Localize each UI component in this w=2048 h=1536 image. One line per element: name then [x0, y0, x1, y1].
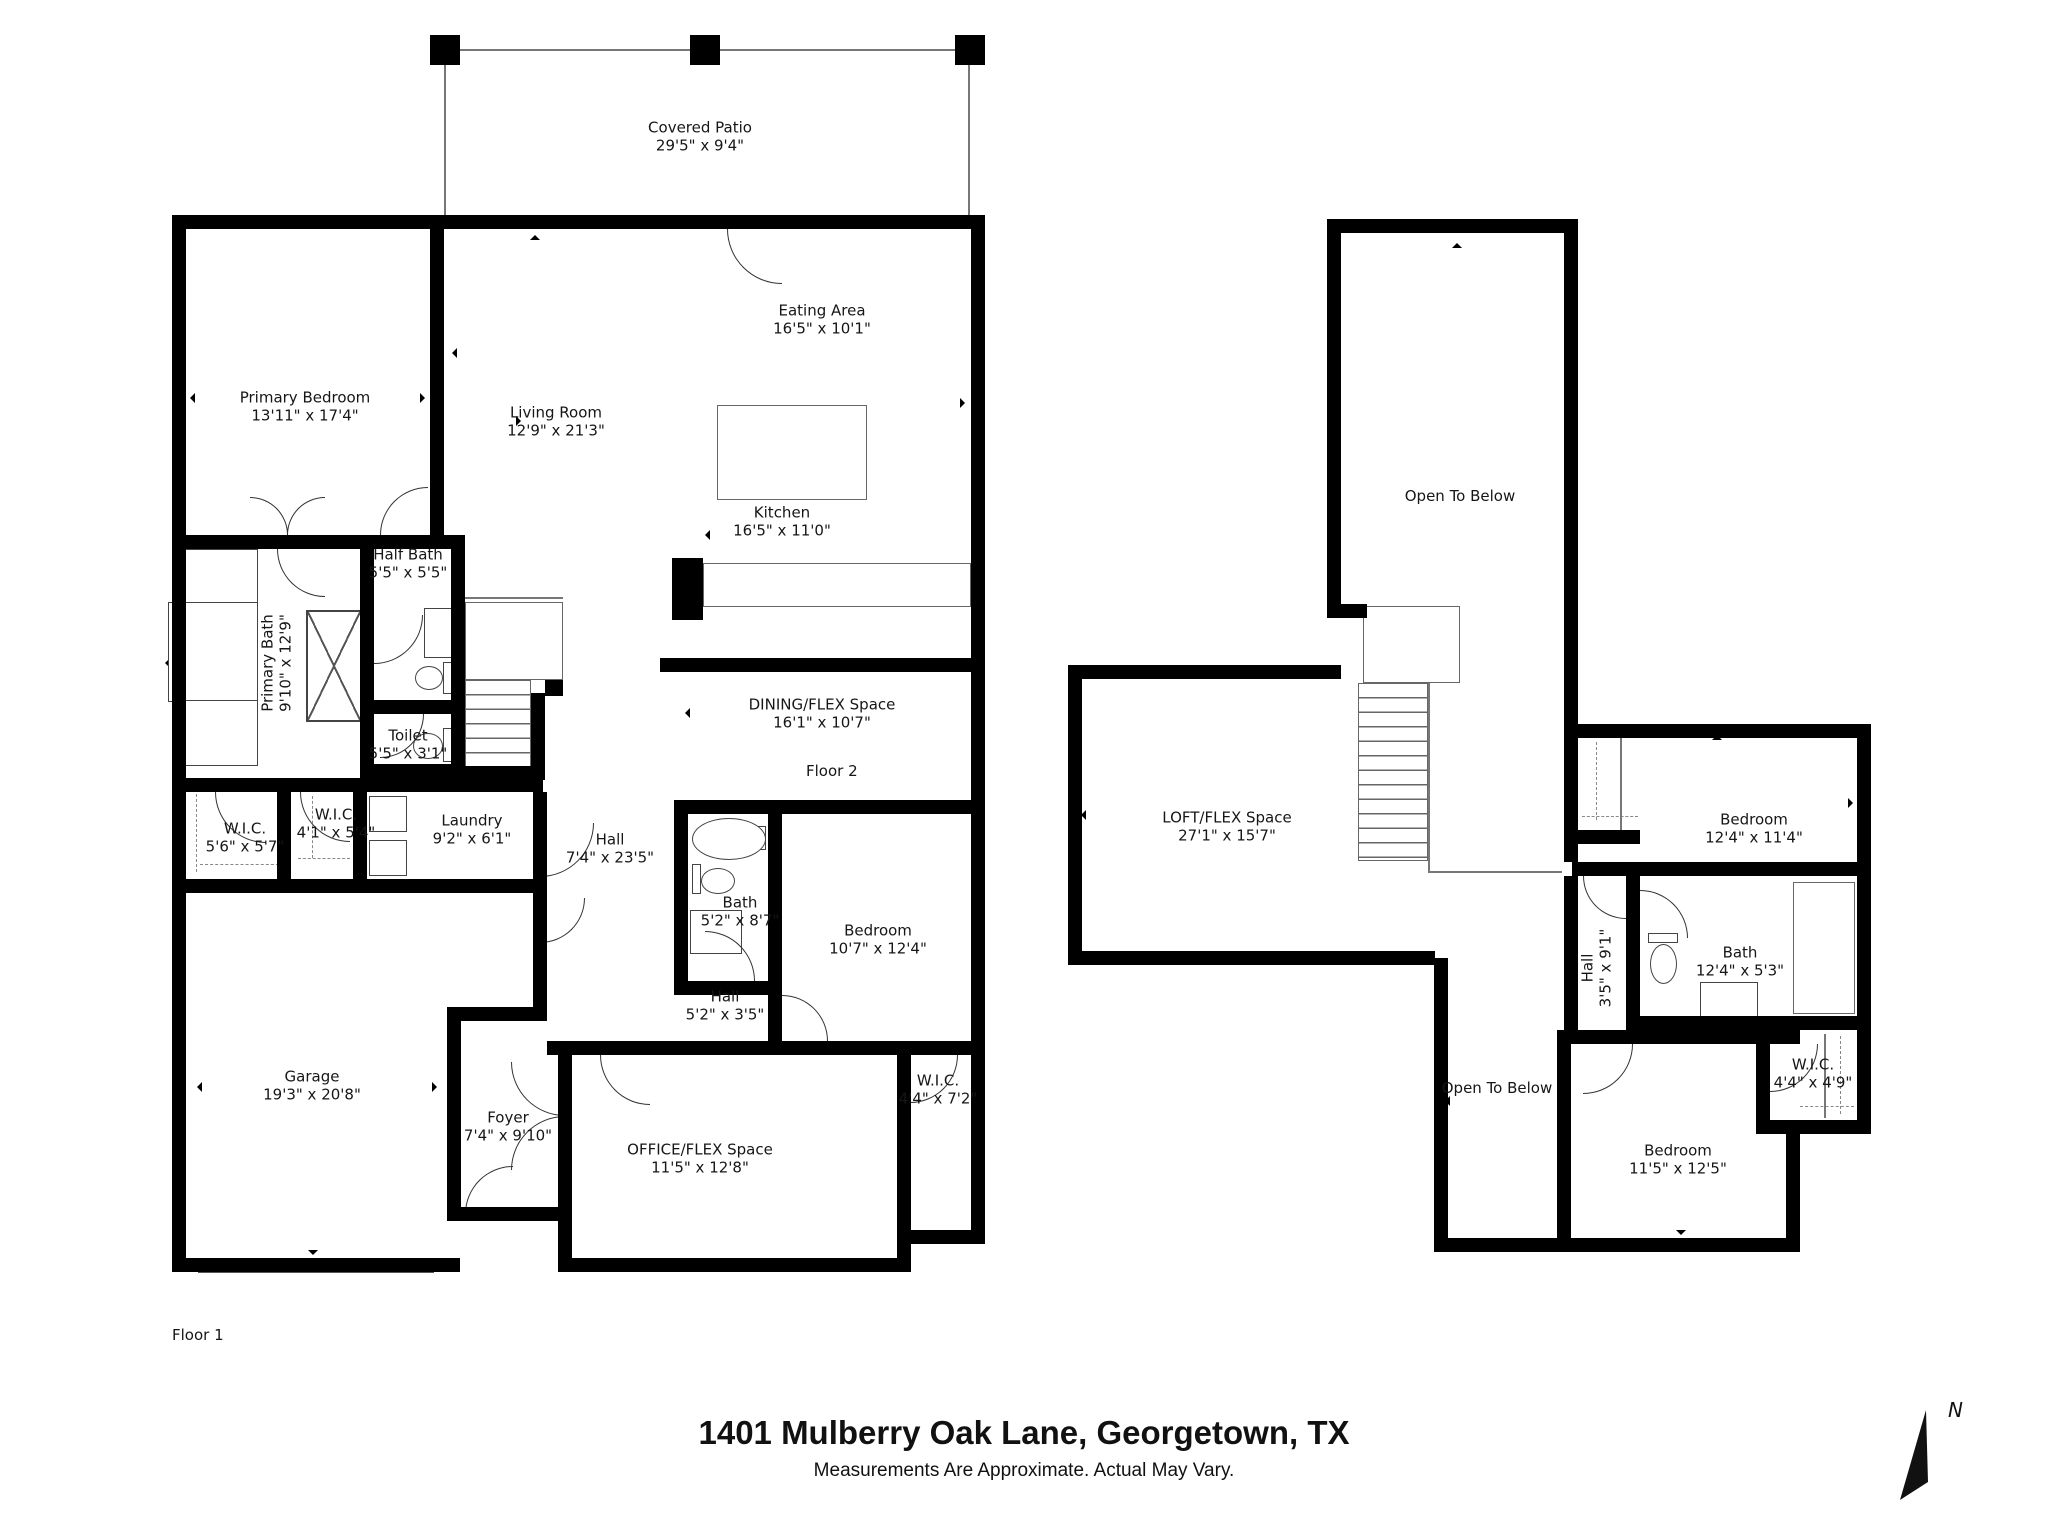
room-label-toilet: Toilet5'5" x 3'1"	[369, 727, 448, 762]
patio-edge	[444, 49, 446, 215]
wall	[172, 778, 543, 792]
closet-rod	[298, 858, 350, 861]
room-label-living-room: Living Room12'9" x 21'3"	[507, 404, 605, 439]
wall	[1578, 830, 1640, 844]
wall	[1327, 219, 1578, 233]
stairs	[465, 597, 563, 599]
room-label-open-to-below-top: Open To Below	[1405, 488, 1516, 506]
room-label-wic-f2: W.I.C.4'4" x 4'9"	[1774, 1056, 1853, 1091]
wall	[1857, 724, 1871, 1134]
door-arc	[380, 487, 428, 535]
wall	[451, 549, 465, 778]
dimension-arrow	[680, 708, 690, 718]
dimension-arrow	[700, 530, 710, 540]
wall	[558, 1258, 911, 1272]
wall	[1756, 1030, 1770, 1134]
wall	[1434, 1238, 1571, 1252]
stairs	[1363, 606, 1460, 683]
patio-post	[690, 35, 720, 65]
wall	[1572, 862, 1871, 876]
wall	[1327, 219, 1341, 618]
bathtub-icon	[692, 818, 766, 860]
closet-rod	[200, 864, 284, 867]
wall	[558, 1221, 572, 1272]
closet-rod	[1582, 816, 1638, 819]
room-label-open-to-below-bottom: Open To Below	[1442, 1080, 1553, 1098]
wall	[1564, 876, 1578, 1043]
wall	[768, 814, 782, 1055]
kitchen-counter	[703, 563, 971, 607]
wall	[674, 814, 688, 995]
north-arrow-icon	[1898, 1408, 1958, 1508]
room-label-half-bath: Half Bath5'5" x 5'5"	[369, 546, 448, 581]
railing	[1428, 683, 1430, 873]
wall	[547, 1041, 971, 1055]
door-arc	[705, 931, 755, 981]
wall	[360, 764, 465, 778]
door-arc	[287, 497, 325, 535]
wall	[674, 800, 971, 814]
page-title: 1401 Mulberry Oak Lane, Georgetown, TX	[0, 1414, 2048, 1452]
room-label-loft-flex: LOFT/FLEX Space27'1" x 15'7"	[1162, 809, 1291, 844]
railing	[1430, 871, 1562, 873]
door-arc	[277, 549, 325, 597]
door-arc	[374, 615, 423, 664]
door-arc	[250, 497, 288, 535]
wall	[172, 215, 186, 1272]
wall	[447, 1207, 572, 1221]
wall	[1564, 738, 1578, 862]
room-label-eating-area: Eating Area16'5" x 10'1"	[773, 302, 871, 337]
room-label-office-flex: OFFICE/FLEX Space11'5" x 12'8"	[627, 1141, 773, 1176]
shower-icon	[306, 610, 362, 722]
patio-edge	[968, 49, 970, 215]
wall	[1578, 724, 1871, 738]
room-label-wic-2: W.I.C.4'1" x 5'4"	[297, 806, 376, 841]
floor1-label: Floor 1	[172, 1326, 224, 1344]
wall	[447, 1007, 547, 1021]
patio-post	[955, 35, 985, 65]
door-arc	[1583, 1044, 1633, 1094]
closet-rod	[196, 794, 199, 872]
stairs	[465, 680, 531, 772]
room-label-bedroom-1-f2: Bedroom12'4" x 11'4"	[1705, 811, 1803, 846]
door-arc	[782, 995, 828, 1041]
stairs	[1358, 683, 1428, 861]
wall	[447, 1021, 461, 1221]
wall	[1564, 219, 1578, 738]
room-label-hall-2: Hall5'2" x 3'5"	[686, 988, 765, 1023]
toilet-icon	[1650, 944, 1677, 984]
wall	[430, 229, 444, 549]
room-label-dining-flex: DINING/FLEX Space16'1" x 10'7"	[749, 696, 896, 731]
bathtub-icon	[1793, 882, 1855, 1014]
dimension-arrow	[432, 1082, 442, 1092]
patio-post	[430, 35, 460, 65]
room-label-foyer: Foyer7'4" x 9'10"	[464, 1109, 552, 1144]
closet-shelf	[1620, 738, 1622, 830]
toilet-tank	[692, 864, 701, 894]
wall	[172, 215, 985, 229]
dimension-arrow	[960, 398, 970, 408]
room-label-bath-f2: Bath12'4" x 5'3"	[1696, 944, 1784, 979]
room-label-primary-bath: Primary Bath9'10" x 12'9"	[259, 614, 294, 712]
room-label-bedroom-2-f2: Bedroom11'5" x 12'5"	[1629, 1142, 1727, 1177]
dimension-arrow	[420, 393, 430, 403]
wall	[1068, 665, 1341, 679]
room-label-garage: Garage19'3" x 20'8"	[263, 1068, 361, 1103]
floor-plan-canvas: Covered Patio29'5" x 9'4" Primary Bedroo…	[0, 0, 2048, 1536]
wall	[545, 680, 563, 696]
room-label-wic-1: W.I.C.5'6" x 5'7"	[206, 820, 285, 855]
page-disclaimer: Measurements Are Approximate. Actual May…	[0, 1460, 2048, 1482]
vanity	[174, 549, 258, 603]
dimension-arrow	[447, 348, 457, 358]
stairs	[465, 602, 563, 680]
wall	[1557, 1030, 1571, 1252]
wall	[1068, 951, 1435, 965]
wall	[1640, 1016, 1871, 1030]
room-label-kitchen: Kitchen16'5" x 11'0"	[733, 504, 831, 539]
floor2-label: Floor 2	[806, 762, 858, 780]
kitchen-island	[717, 405, 867, 500]
closet-rod	[1800, 1106, 1854, 1109]
wall	[1756, 1120, 1871, 1134]
dryer-icon	[369, 840, 407, 876]
wall	[1786, 1134, 1800, 1252]
wall	[533, 792, 547, 1021]
dimension-arrow	[192, 1082, 202, 1092]
room-label-bath-1: Bath5'2" x 8'7"	[701, 894, 780, 929]
wall	[531, 693, 545, 780]
door-arc	[600, 1055, 650, 1105]
dimension-arrow	[185, 393, 195, 403]
toilet-icon	[701, 868, 735, 894]
room-label-laundry: Laundry9'2" x 6'1"	[433, 812, 512, 847]
wall	[660, 658, 971, 672]
room-label-covered-patio: Covered Patio29'5" x 9'4"	[648, 119, 752, 154]
wall	[558, 1041, 572, 1221]
dimension-arrow	[1452, 238, 1462, 248]
room-label-hall-f2: Hall3'5" x 9'1"	[1579, 929, 1614, 1008]
door-arc	[727, 229, 782, 284]
room-label-hall: Hall7'4" x 23'5"	[566, 831, 654, 866]
door-arc	[1640, 890, 1688, 938]
wall	[172, 1258, 460, 1272]
door-arc	[1583, 876, 1626, 919]
wall	[1068, 665, 1082, 965]
room-label-wic-3: W.I.C.4'4" x 7'2"	[899, 1072, 978, 1107]
wall	[1626, 876, 1640, 1044]
wall	[1557, 1238, 1800, 1252]
wall	[672, 558, 703, 620]
wall	[172, 879, 547, 893]
vanity	[174, 700, 258, 766]
dimension-arrow	[530, 230, 540, 240]
room-label-primary-bedroom: Primary Bedroom13'11" x 17'4"	[240, 389, 371, 424]
room-label-bedroom-f1: Bedroom10'7" x 12'4"	[829, 922, 927, 957]
toilet-icon	[415, 666, 443, 690]
wall	[1434, 958, 1448, 1252]
closet-rod	[1596, 742, 1599, 820]
